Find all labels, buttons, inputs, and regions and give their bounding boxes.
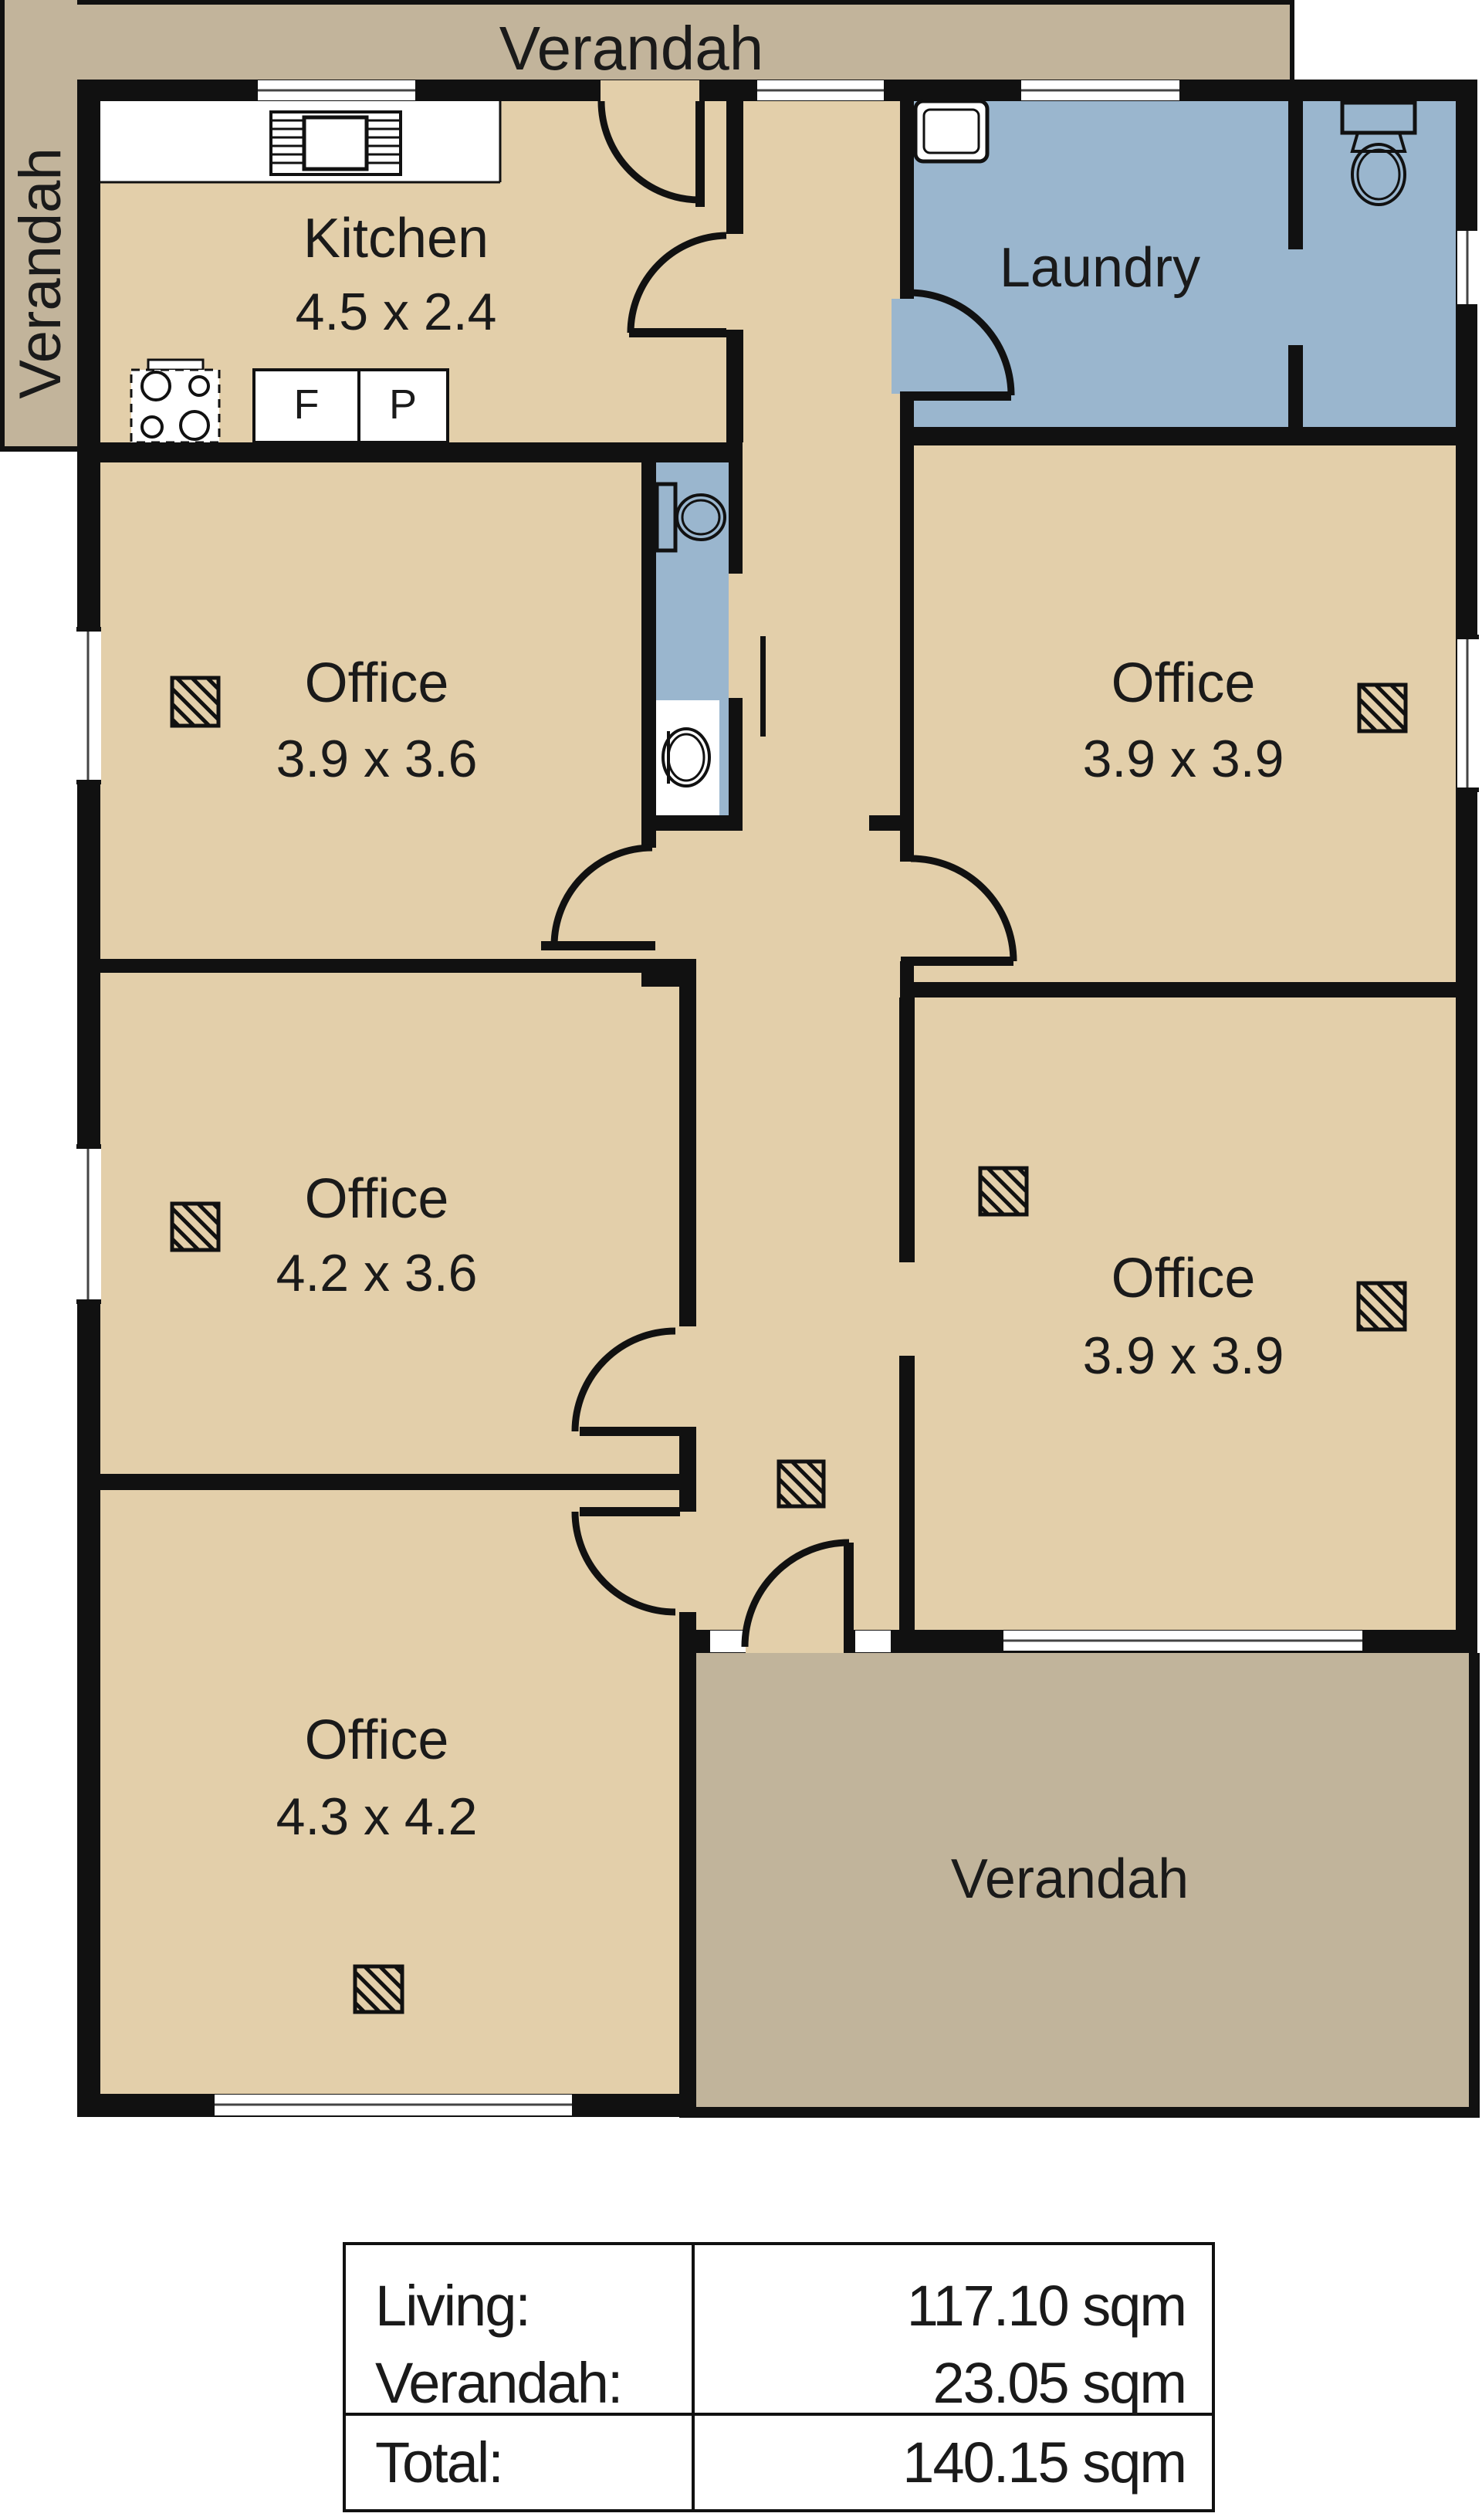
svg-text:4.5 x 2.4: 4.5 x 2.4 bbox=[296, 283, 497, 341]
svg-text:3.9 x 3.9: 3.9 x 3.9 bbox=[1083, 1326, 1284, 1385]
svg-text:117.10 sqm: 117.10 sqm bbox=[907, 2274, 1186, 2338]
svg-text:Verandah: Verandah bbox=[499, 14, 764, 83]
svg-text:Office: Office bbox=[1111, 652, 1256, 714]
svg-text:4.2 x 3.6: 4.2 x 3.6 bbox=[276, 1244, 478, 1302]
svg-text:Office: Office bbox=[305, 1168, 449, 1230]
svg-text:Kitchen: Kitchen bbox=[303, 208, 489, 269]
svg-text:Verandah: Verandah bbox=[8, 147, 73, 398]
svg-text:Verandah: Verandah bbox=[951, 1848, 1189, 1910]
svg-text:Office: Office bbox=[305, 1709, 449, 1771]
svg-text:Living:: Living: bbox=[375, 2274, 530, 2338]
svg-text:3.9 x 3.6: 3.9 x 3.6 bbox=[276, 730, 478, 788]
svg-text:Office: Office bbox=[305, 652, 449, 714]
svg-text:4.3 x 4.2: 4.3 x 4.2 bbox=[276, 1787, 478, 1846]
svg-text:23.05 sqm: 23.05 sqm bbox=[932, 2351, 1186, 2415]
svg-text:140.15 sqm: 140.15 sqm bbox=[902, 2430, 1186, 2495]
svg-text:F: F bbox=[294, 381, 320, 428]
svg-text:P: P bbox=[389, 381, 417, 428]
svg-text:Total:: Total: bbox=[375, 2430, 502, 2495]
svg-text:Verandah:: Verandah: bbox=[375, 2351, 621, 2415]
svg-text:3.9 x 3.9: 3.9 x 3.9 bbox=[1083, 730, 1284, 788]
svg-text:Laundry: Laundry bbox=[1000, 237, 1200, 299]
svg-text:Office: Office bbox=[1111, 1248, 1256, 1309]
